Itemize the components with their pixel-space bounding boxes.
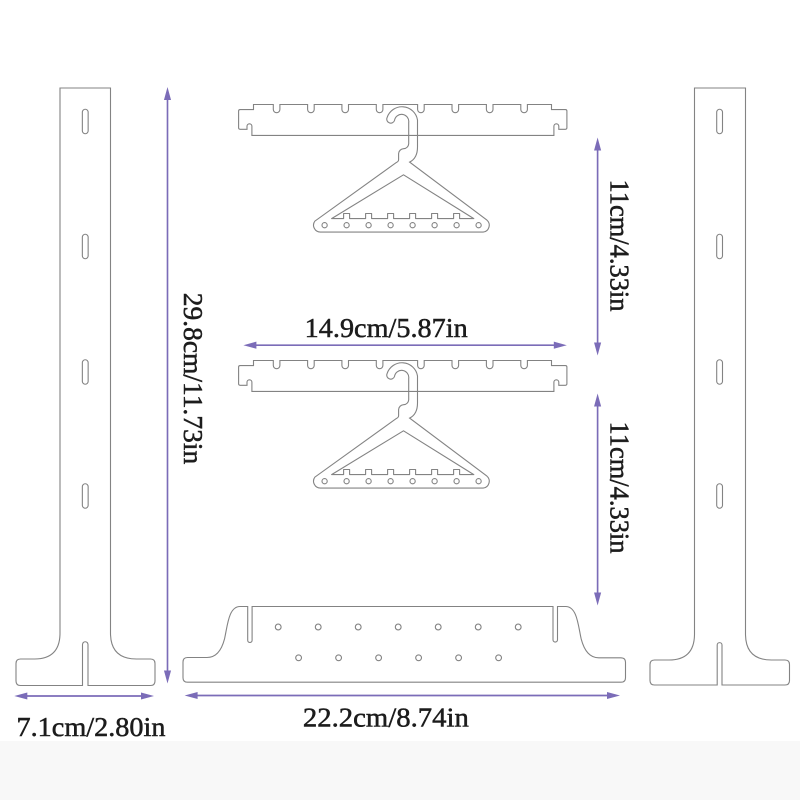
svg-text:7.1cm/2.80in: 7.1cm/2.80in — [17, 712, 167, 742]
svg-text:22.2cm/8.74in: 22.2cm/8.74in — [303, 703, 470, 733]
svg-text:14.9cm/5.87in: 14.9cm/5.87in — [305, 313, 469, 343]
svg-text:11cm/4.33in: 11cm/4.33in — [605, 180, 635, 312]
svg-text:29.8cm/11.73in: 29.8cm/11.73in — [178, 293, 208, 465]
svg-text:11cm/4.33in: 11cm/4.33in — [605, 422, 635, 554]
